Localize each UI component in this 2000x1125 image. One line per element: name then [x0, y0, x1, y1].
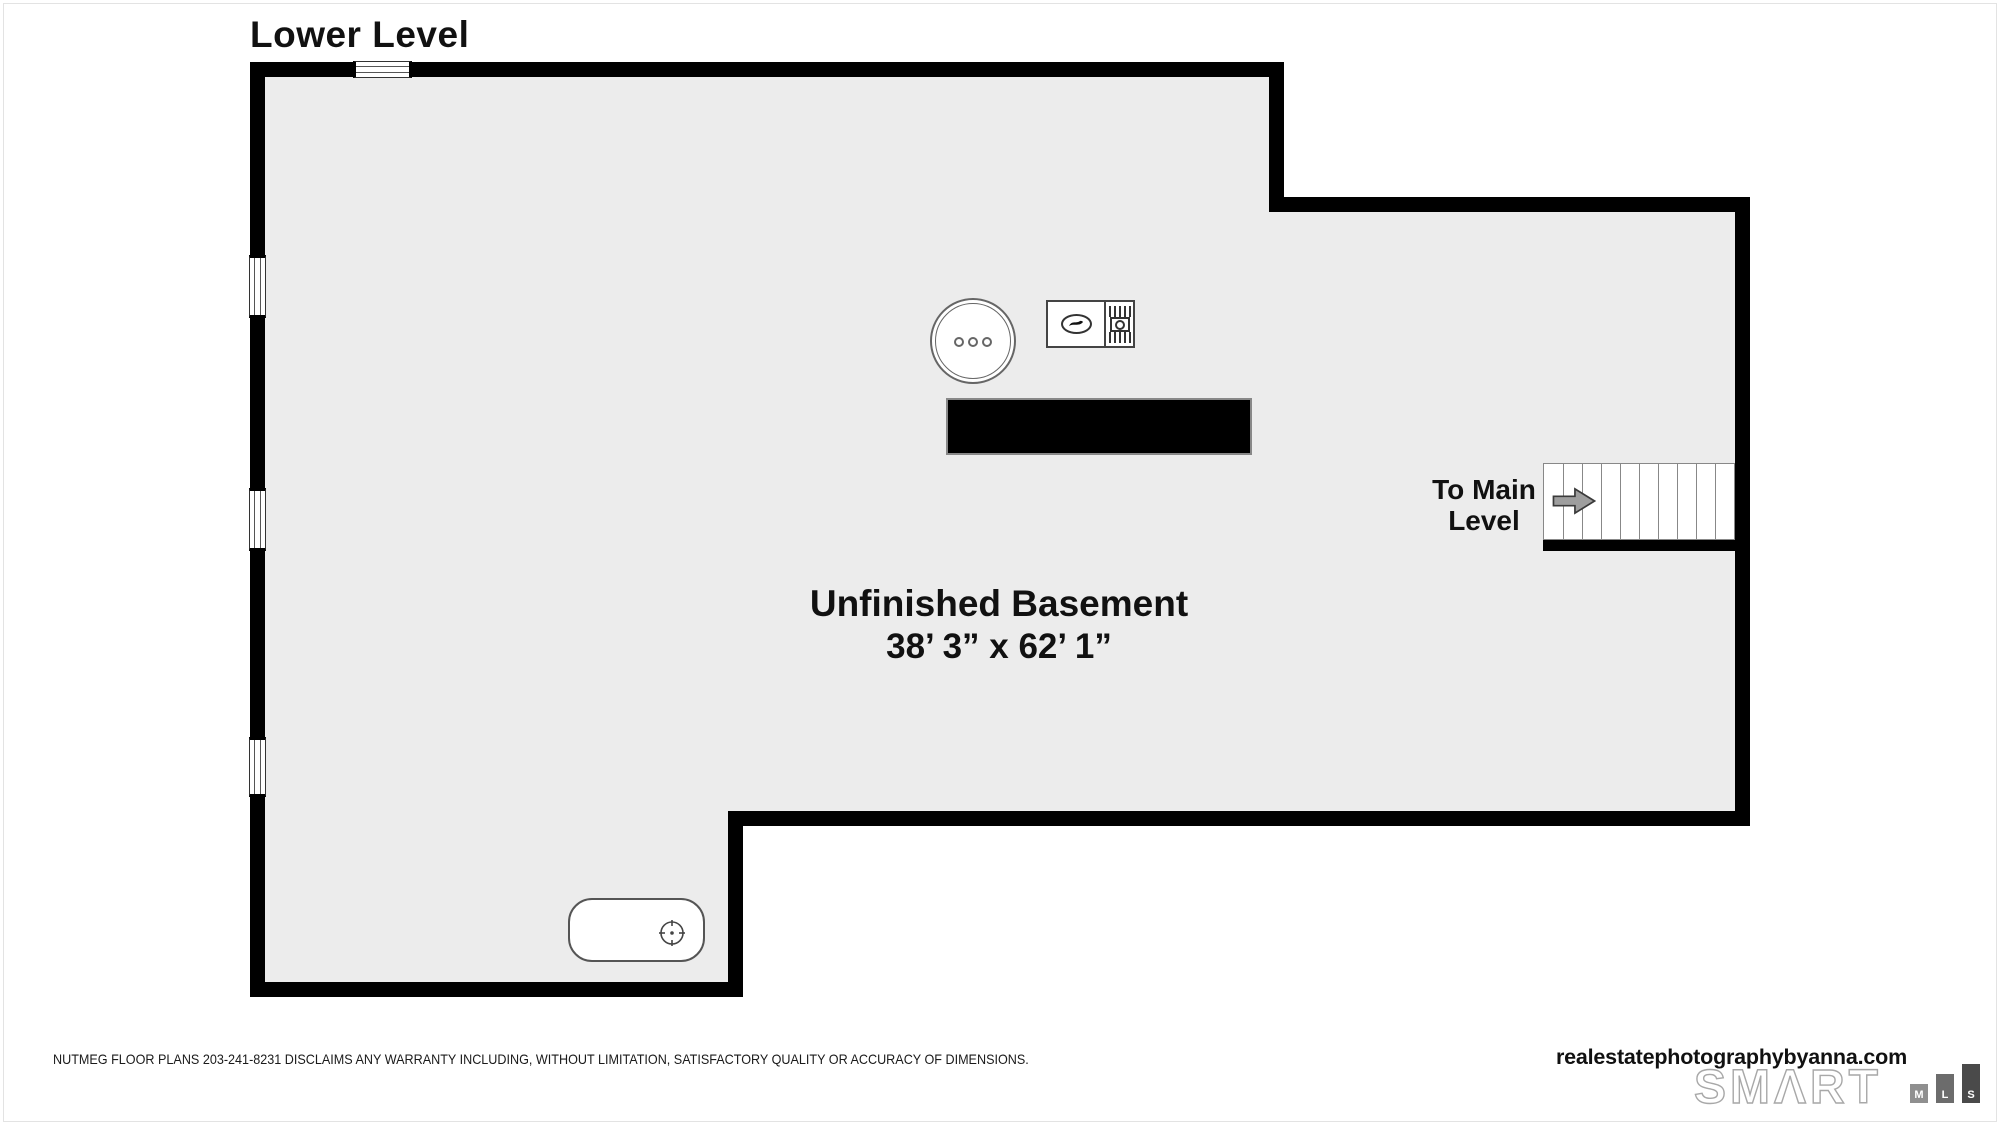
- room-dimensions: 38’ 3” x 62’ 1”: [549, 625, 1449, 669]
- flame-icon: [1068, 320, 1084, 328]
- furnace-unit-icon: [1046, 300, 1135, 348]
- stairs-label-line1: To Main: [1384, 474, 1584, 505]
- well-tank-dot: [982, 337, 992, 347]
- stair-tread-line: [1696, 464, 1697, 539]
- floorplan-floor: [0, 0, 2000, 1125]
- well-tank-dot: [968, 337, 978, 347]
- stair-tread-line: [1601, 464, 1602, 539]
- furnace-coil-top: [1109, 306, 1131, 317]
- stair-tread-line: [1715, 464, 1716, 539]
- window-left-wall-1: [249, 255, 266, 318]
- oil-tank-cap-icon: [658, 919, 686, 947]
- furnace-burner-ellipse: [1061, 314, 1092, 334]
- room-label: Unfinished Basement 38’ 3” x 62’ 1”: [549, 583, 1449, 669]
- room-name: Unfinished Basement: [549, 583, 1449, 625]
- well-pressure-tank-icon: [930, 298, 1016, 384]
- oil-tank-icon: [568, 898, 705, 962]
- furnace-coil-bottom: [1109, 332, 1131, 343]
- stairs-bottom-wall: [1543, 540, 1736, 551]
- window-top-wall: [353, 61, 412, 78]
- well-tank-dot: [954, 337, 964, 347]
- stair-tread-line: [1639, 464, 1640, 539]
- well-tank-dots: [932, 337, 1014, 347]
- mls-box-s: S: [1962, 1064, 1980, 1103]
- window-left-wall-2: [249, 488, 266, 551]
- furnace-divider: [1104, 302, 1106, 346]
- window-left-wall-3: [249, 737, 266, 797]
- stair-tread-line: [1658, 464, 1659, 539]
- photographer-website: realestatephotographybyanna.com: [1556, 1045, 1907, 1070]
- stair-tread-line: [1677, 464, 1678, 539]
- stairs-label-line2: Level: [1384, 505, 1584, 536]
- stairs-label: To Main Level: [1384, 474, 1584, 536]
- mls-box-l: L: [1936, 1074, 1954, 1103]
- page-title: Lower Level: [250, 14, 469, 56]
- structural-beam: [946, 398, 1252, 455]
- furnace-fan-box: [1110, 317, 1130, 332]
- stair-tread-line: [1620, 464, 1621, 539]
- disclaimer-text: NUTMEG FLOOR PLANS 203-241-8231 DISCLAIM…: [53, 1051, 1029, 1067]
- mls-box-m: M: [1910, 1084, 1928, 1103]
- furnace-fan-circle: [1115, 320, 1125, 330]
